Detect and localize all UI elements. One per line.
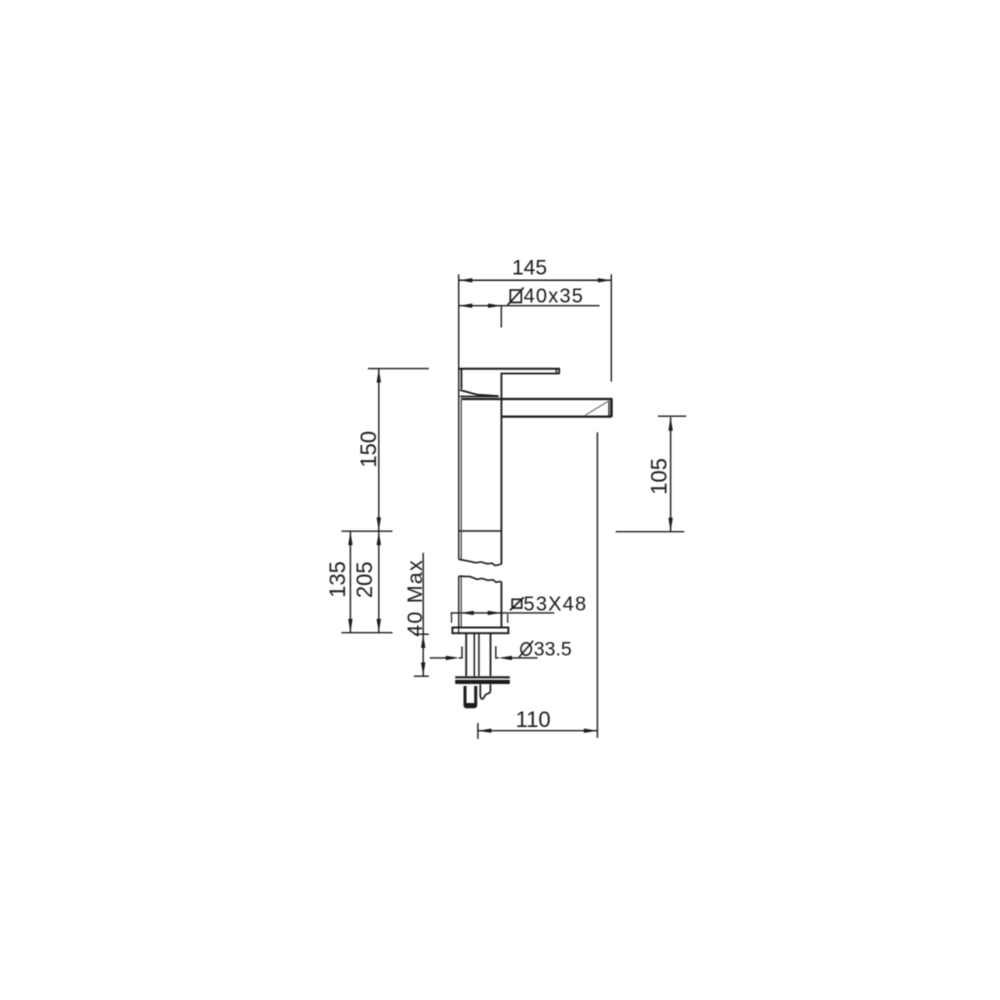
svg-text:145: 145 (512, 256, 547, 279)
svg-text:105: 105 (646, 458, 671, 495)
svg-text:53X48: 53X48 (524, 593, 588, 615)
svg-text:33.5: 33.5 (534, 638, 572, 660)
svg-text:205: 205 (352, 561, 377, 598)
svg-text:135: 135 (325, 561, 350, 598)
svg-text:110: 110 (516, 707, 551, 732)
svg-text:150: 150 (356, 431, 381, 468)
svg-text:40x35: 40x35 (524, 286, 585, 308)
